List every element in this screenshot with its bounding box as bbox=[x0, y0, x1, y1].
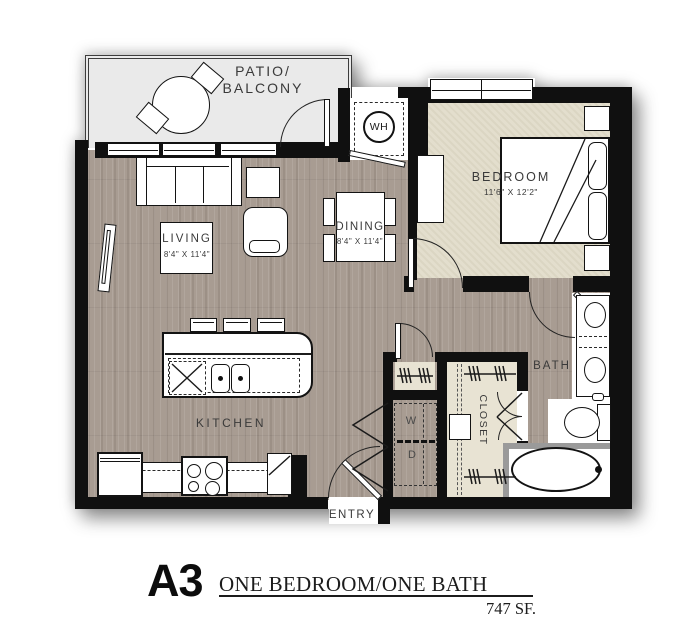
plan-name: ONE BEDROOM/ONE BATH bbox=[219, 572, 488, 597]
barstool-edge bbox=[226, 322, 248, 323]
barstool bbox=[190, 318, 217, 332]
coat-closet-floor bbox=[395, 362, 435, 390]
dishwasher bbox=[169, 361, 206, 395]
bedroom-window bbox=[430, 79, 533, 100]
nightstand bbox=[584, 245, 610, 271]
burner bbox=[205, 462, 223, 480]
vanity-dash bbox=[579, 347, 607, 348]
living-dimensions: 8'4" X 11'4" bbox=[164, 250, 210, 259]
wall-segment bbox=[390, 497, 632, 509]
barstool bbox=[223, 318, 251, 332]
wall-segment bbox=[75, 497, 328, 509]
patio-label-line1: PATIO/ bbox=[235, 63, 291, 79]
pillow bbox=[588, 192, 607, 240]
living-label: LIVING bbox=[162, 233, 212, 245]
closet-label: CLOSET bbox=[477, 394, 489, 445]
wall-segment bbox=[385, 390, 445, 400]
window bbox=[107, 143, 160, 156]
wall-segment bbox=[377, 497, 390, 524]
bath-label: BATH bbox=[533, 360, 571, 372]
water-heater-icon: WH bbox=[363, 111, 395, 143]
window-mullion bbox=[109, 150, 158, 151]
wall-segment bbox=[573, 276, 612, 292]
burner bbox=[188, 481, 199, 492]
bedroom-label: BEDROOM bbox=[472, 170, 551, 184]
dining-chair bbox=[323, 198, 335, 226]
barstool bbox=[257, 318, 285, 332]
dining-chair bbox=[384, 234, 396, 262]
sink-drain bbox=[238, 376, 243, 381]
side-table bbox=[246, 167, 280, 198]
washer-dryer-divider bbox=[397, 440, 435, 443]
wall-segment bbox=[463, 276, 529, 292]
floor-plan-page: PATIO/ BALCONY WH LIVING 8'4" X 11'4" DI… bbox=[0, 0, 687, 633]
wall-segment bbox=[435, 352, 527, 362]
entry-label: ENTRY bbox=[329, 509, 375, 521]
toilet-bowl bbox=[564, 407, 600, 438]
sofa-arm bbox=[231, 158, 241, 205]
washer-dryer-inner-dash bbox=[423, 404, 424, 484]
burner bbox=[205, 481, 220, 496]
bathtub bbox=[511, 447, 601, 492]
tv-screen bbox=[101, 230, 111, 284]
plan-area: 747 SF. bbox=[430, 599, 536, 619]
window-divider bbox=[481, 80, 482, 99]
armchair-seat bbox=[249, 240, 280, 253]
patio-label-line2: BALCONY bbox=[223, 80, 304, 96]
dining-chair bbox=[323, 234, 335, 262]
wall-segment bbox=[338, 88, 350, 162]
pillow bbox=[588, 142, 607, 190]
wall-segment bbox=[383, 352, 393, 497]
island-counter-edge bbox=[165, 353, 311, 355]
bedroom-dimensions: 11'6" X 12'2" bbox=[484, 187, 538, 197]
barstool-edge bbox=[260, 322, 282, 323]
closet-shelf bbox=[449, 414, 471, 440]
plan-code: A3 bbox=[147, 555, 203, 607]
dining-label: DINING bbox=[335, 221, 384, 233]
vanity-dash bbox=[579, 336, 607, 337]
sofa bbox=[136, 157, 242, 206]
kitchen-label: KITCHEN bbox=[196, 416, 266, 430]
vanity-sink bbox=[584, 302, 606, 328]
counter-end-panel bbox=[267, 453, 292, 495]
armchair bbox=[243, 207, 288, 257]
dresser bbox=[417, 155, 444, 223]
window bbox=[220, 143, 277, 156]
dining-dimensions: 8'4" X 11'4" bbox=[337, 237, 383, 246]
vanity-fixture bbox=[592, 393, 604, 401]
burner bbox=[187, 464, 201, 478]
wall-segment bbox=[610, 88, 632, 509]
coffee-table bbox=[160, 222, 213, 274]
tub-faucet bbox=[595, 466, 602, 473]
nightstand bbox=[584, 106, 610, 131]
dining-chair bbox=[384, 198, 396, 226]
sofa-cushion-divider bbox=[175, 167, 176, 203]
patio-door-leaf bbox=[324, 99, 330, 147]
coat-closet-door-leaf bbox=[395, 323, 401, 359]
washer-label: W bbox=[406, 415, 416, 427]
bedroom-door-leaf bbox=[408, 238, 414, 288]
wall-segment bbox=[437, 352, 447, 497]
window-mullion bbox=[222, 150, 275, 151]
window bbox=[162, 143, 216, 156]
vanity-sink bbox=[584, 357, 606, 383]
dryer-label: D bbox=[408, 449, 416, 461]
sofa-arm bbox=[137, 158, 147, 205]
title-underline bbox=[219, 595, 533, 597]
wall-segment bbox=[408, 88, 428, 165]
refrigerator bbox=[97, 452, 143, 497]
barstool-edge bbox=[193, 322, 214, 323]
window-mullion bbox=[164, 150, 214, 151]
wall-segment bbox=[75, 140, 88, 509]
sofa-cushion-divider bbox=[203, 167, 204, 203]
sink-drain bbox=[218, 376, 223, 381]
refrigerator-doors bbox=[100, 458, 140, 462]
sofa-back bbox=[147, 158, 229, 167]
